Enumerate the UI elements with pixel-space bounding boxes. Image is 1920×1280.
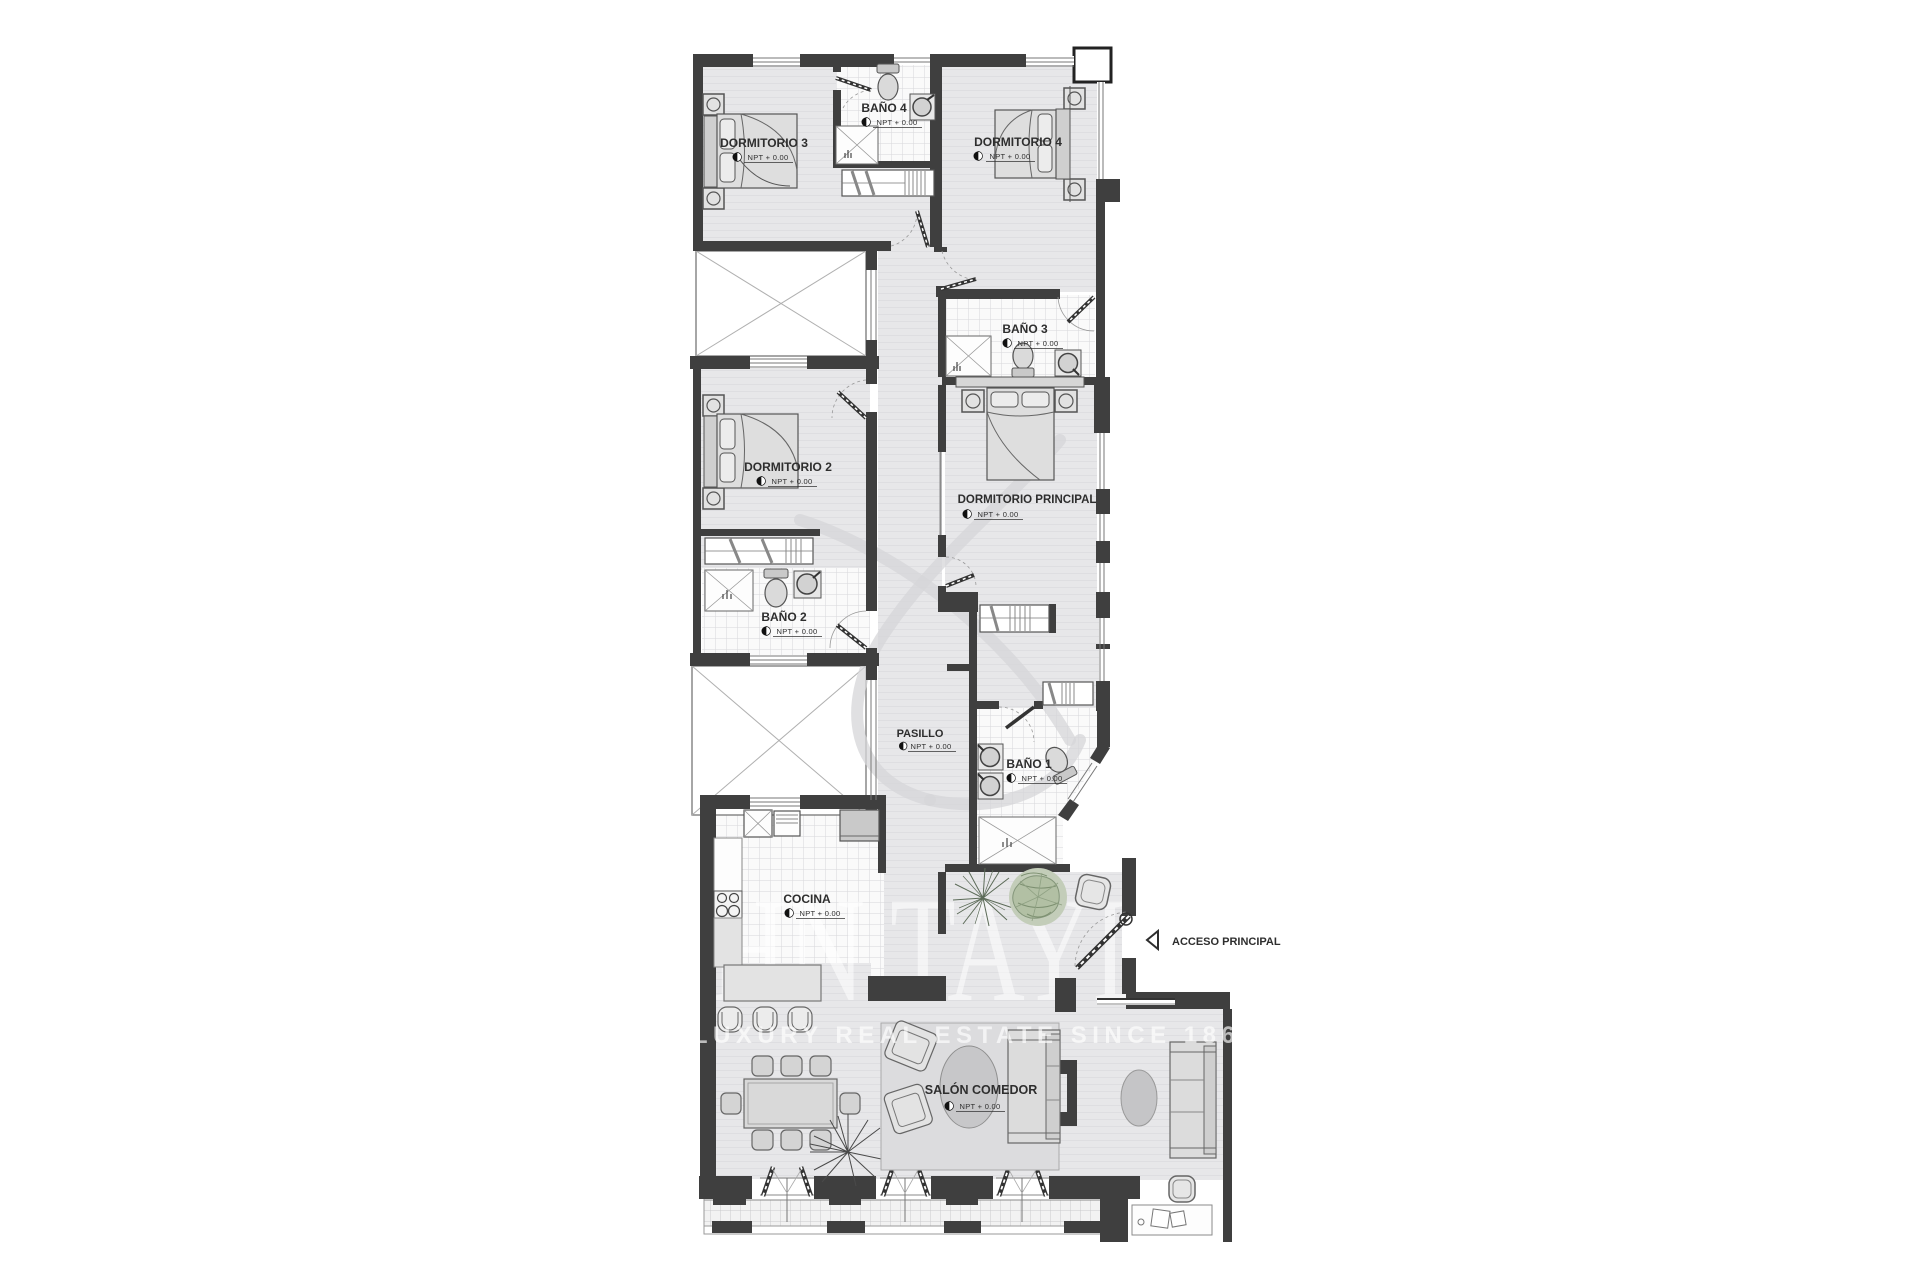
svg-text:BAÑO 1: BAÑO 1 xyxy=(1006,756,1052,771)
svg-text:BAÑO 2: BAÑO 2 xyxy=(761,609,807,624)
svg-text:BAÑO 4: BAÑO 4 xyxy=(861,100,907,115)
svg-text:DORMITORIO 4: DORMITORIO 4 xyxy=(974,135,1062,149)
svg-text:DORMITORIO 3: DORMITORIO 3 xyxy=(720,136,808,150)
svg-text:NPT + 0.00: NPT + 0.00 xyxy=(959,1102,1000,1111)
svg-text:NPT + 0.00: NPT + 0.00 xyxy=(977,510,1018,519)
svg-text:BAÑO 3: BAÑO 3 xyxy=(1002,321,1048,336)
svg-text:NPT + 0.00: NPT + 0.00 xyxy=(799,909,840,918)
svg-text:COCINA: COCINA xyxy=(783,892,831,906)
svg-text:NPT + 0.00: NPT + 0.00 xyxy=(876,118,917,127)
svg-text:ACCESO PRINCIPAL: ACCESO PRINCIPAL xyxy=(1172,936,1281,948)
svg-text:NPT + 0.00: NPT + 0.00 xyxy=(771,477,812,486)
svg-text:NPT + 0.00: NPT + 0.00 xyxy=(910,742,951,751)
svg-text:DORMITORIO PRINCIPAL: DORMITORIO PRINCIPAL xyxy=(958,494,1097,506)
svg-text:NPT + 0.00: NPT + 0.00 xyxy=(747,153,788,162)
svg-text:LUXURY REAL ESTATE SINCE 1864: LUXURY REAL ESTATE SINCE 1864 xyxy=(693,1022,1259,1049)
svg-text:NPT + 0.00: NPT + 0.00 xyxy=(1017,339,1058,348)
svg-text:DORMITORIO 2: DORMITORIO 2 xyxy=(744,460,832,474)
svg-text:NPT + 0.00: NPT + 0.00 xyxy=(1021,774,1062,783)
svg-text:SALÓN COMEDOR: SALÓN COMEDOR xyxy=(925,1082,1038,1097)
svg-text:PASILLO: PASILLO xyxy=(897,728,944,740)
svg-text:NPT + 0.00: NPT + 0.00 xyxy=(776,627,817,636)
svg-text:NPT + 0.00: NPT + 0.00 xyxy=(989,152,1030,161)
